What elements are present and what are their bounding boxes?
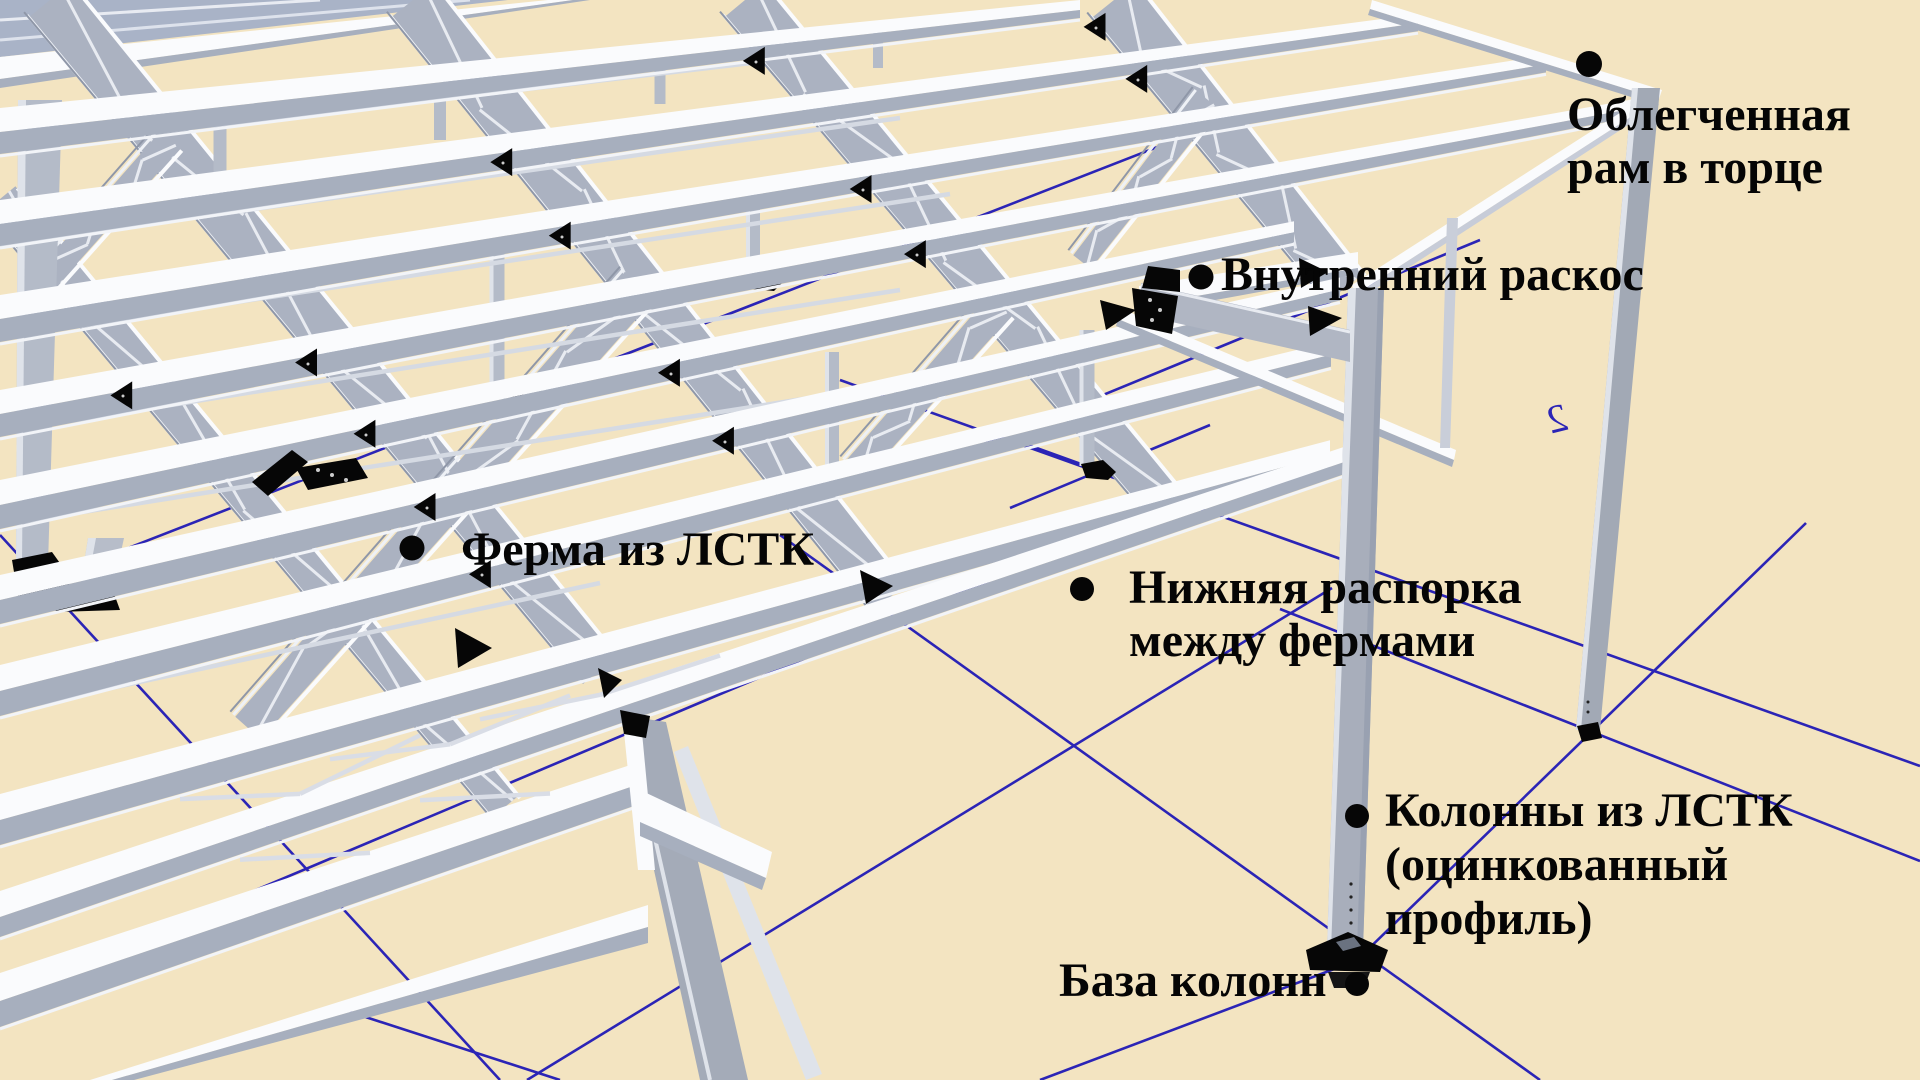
- svg-text:База колонн: База колонн: [1059, 954, 1327, 1007]
- svg-text:Нижняя распоркамежду фермами: Нижняя распоркамежду фермами: [1129, 561, 1522, 667]
- svg-text:Облегченнаярам в торце: Облегченнаярам в торце: [1567, 88, 1851, 194]
- svg-text:Внутренний раскос: Внутренний раскос: [1221, 248, 1644, 301]
- svg-text:Ферма из ЛСТК: Ферма из ЛСТК: [461, 523, 814, 576]
